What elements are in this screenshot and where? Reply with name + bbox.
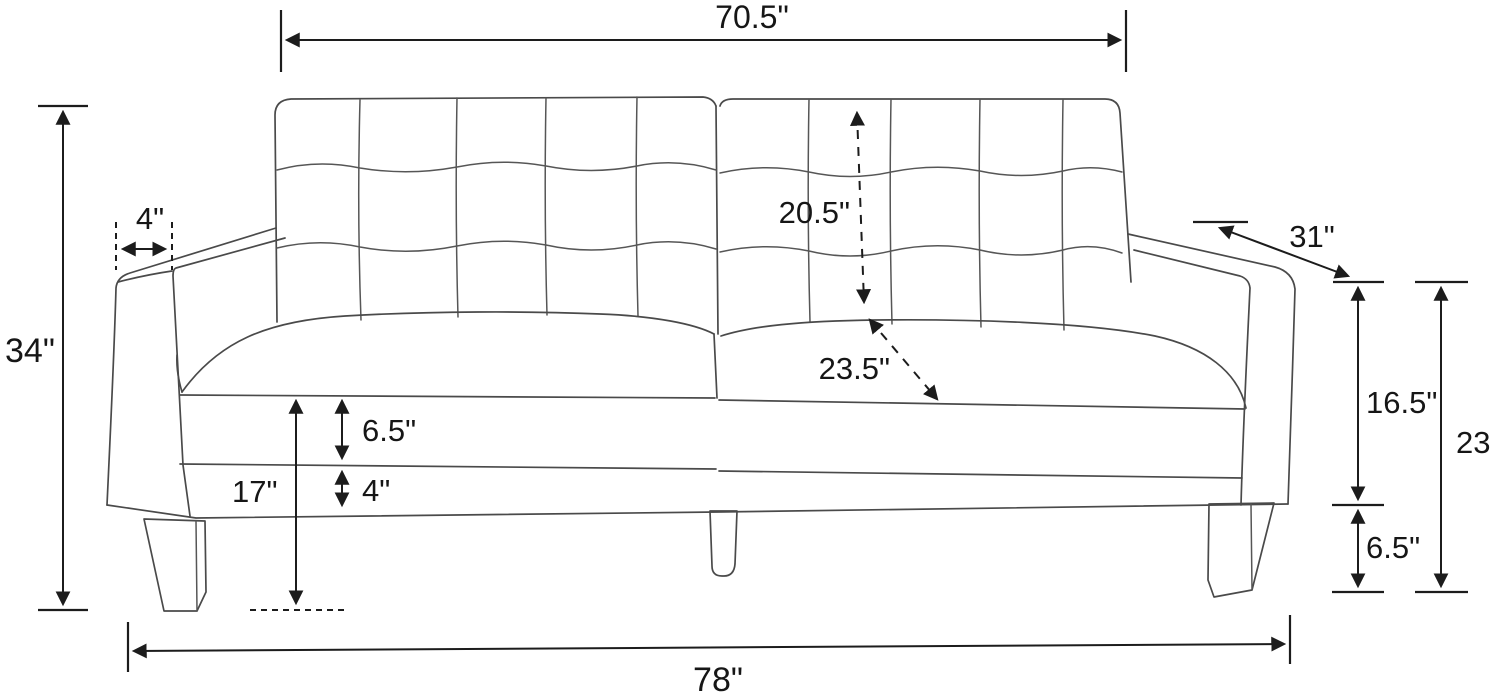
- diagram-canvas: 70.5" 34" 4" 20.5" 23.5" 31" 16.5": [0, 0, 1491, 700]
- dim-label-cushion-thickness: 6.5": [362, 413, 416, 448]
- tuft-row: [720, 246, 1122, 256]
- left-cushion-front-edge: [180, 395, 715, 398]
- dimension-arm-width: 4": [116, 201, 172, 270]
- front-left-leg-edge: [196, 521, 197, 611]
- dim-label-frame-height: 4": [362, 473, 390, 508]
- left-cushion-top: [182, 312, 714, 392]
- dimension-frame-height: 4": [342, 472, 390, 508]
- dim-label-seat-height: 17": [232, 474, 278, 509]
- front-right-leg: [1208, 503, 1274, 597]
- right-arm-top-outer-edge: [1128, 234, 1295, 504]
- dimension-cushion-thickness: 6.5": [342, 401, 416, 458]
- tuft-row: [277, 162, 716, 172]
- dim-label-overall-width: 78": [693, 661, 743, 699]
- dim-label-overall-height: 34": [5, 332, 55, 370]
- tuft-vertical: [636, 97, 638, 316]
- dimension-line: [134, 644, 1284, 651]
- tuft-vertical: [1062, 100, 1064, 330]
- base-rail-bottom: [107, 504, 1288, 518]
- cushion-bottom-line-left: [180, 464, 716, 469]
- dimension-leg-height: 6.5": [1332, 511, 1420, 592]
- dim-label-leg-height: 6.5": [1366, 530, 1420, 565]
- dim-label-back-width: 70.5": [715, 0, 789, 35]
- center-leg: [710, 511, 737, 576]
- left-arm: [107, 228, 285, 516]
- seat-frame: [107, 464, 1288, 518]
- front-right-leg-edge: [1251, 504, 1252, 590]
- legs: [144, 503, 1274, 611]
- dimension-back-height: 20.5": [779, 113, 864, 302]
- dimension-line-dashed: [857, 113, 864, 302]
- tuft-vertical: [456, 98, 458, 317]
- seat-cushions: [177, 312, 1246, 409]
- backrest-right-panel: [720, 99, 1131, 282]
- right-arm: [1128, 234, 1295, 505]
- dimension-overall-depth: 31": [1193, 219, 1348, 276]
- backrest-left-panel: [275, 97, 716, 322]
- dimension-seat-depth: 23.5": [819, 320, 937, 399]
- backrest-seam: [716, 106, 718, 334]
- dimension-seat-height: 17": [232, 401, 346, 610]
- dimension-arm-height: 23": [1415, 282, 1491, 592]
- dimension-back-width: 70.5": [281, 0, 1126, 72]
- cushion-seam: [714, 334, 717, 398]
- dim-label-arm-width: 4": [136, 201, 164, 236]
- right-cushion-top: [721, 320, 1246, 408]
- tuft-vertical: [979, 99, 981, 327]
- dim-label-overall-depth: 31": [1289, 219, 1335, 254]
- dim-label-back-height: 20.5": [779, 195, 850, 230]
- cushion-bottom-line-right: [719, 471, 1242, 478]
- dim-label-arm-height: 23": [1456, 425, 1491, 460]
- dim-label-arm-to-base: 16.5": [1366, 385, 1437, 420]
- dimension-overall-height: 34": [5, 106, 88, 610]
- right-cushion-front-edge: [719, 400, 1245, 409]
- tuft-vertical: [545, 98, 547, 315]
- tuft-vertical: [359, 100, 361, 320]
- tufting-lines-left: [277, 97, 716, 320]
- right-arm-top-inner-edge: [1134, 250, 1250, 505]
- dimension-arm-to-base: 16.5": [1332, 282, 1437, 505]
- sofa-dimension-drawing: 70.5" 34" 4" 20.5" 23.5" 31" 16.5": [0, 0, 1491, 700]
- sofa-drawing: [107, 97, 1295, 611]
- left-arm-front-edge: [118, 271, 172, 282]
- tuft-row: [277, 241, 716, 251]
- dim-label-seat-depth: 23.5": [819, 351, 890, 386]
- tuft-vertical: [890, 99, 892, 324]
- dimension-overall-width: 78": [128, 615, 1290, 699]
